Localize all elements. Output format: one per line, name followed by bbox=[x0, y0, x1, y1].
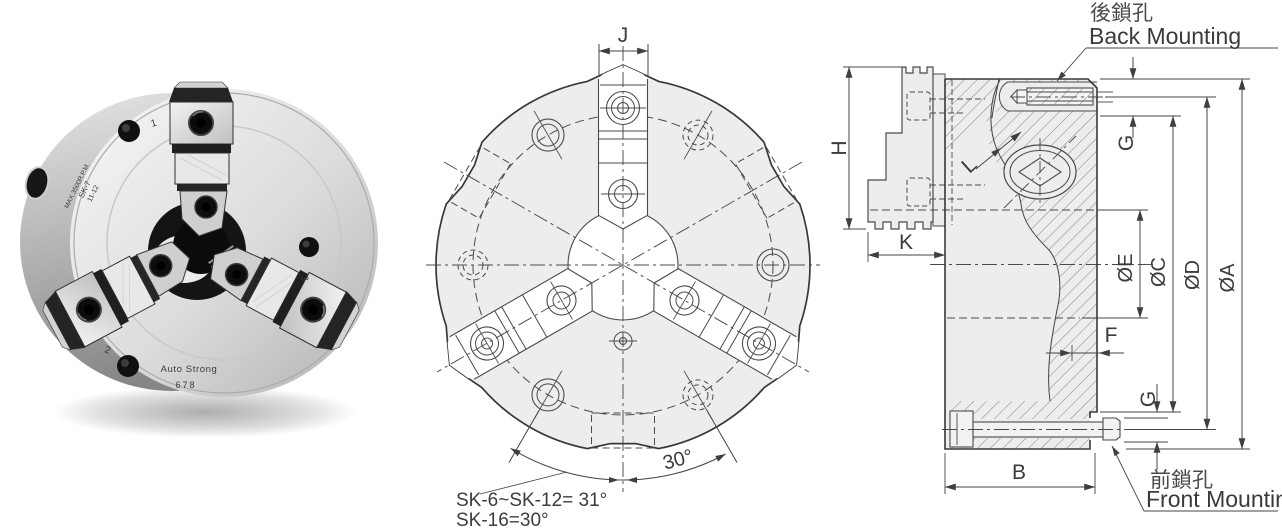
chuck-catalog-figure: MAX.3500R.P.M. SK-7 11-12 1 2 3 Auto Str… bbox=[0, 0, 1282, 530]
figure-svg: MAX.3500R.P.M. SK-7 11-12 1 2 3 Auto Str… bbox=[0, 0, 1282, 530]
back-mounting-callout: 後鎖孔 Back Mounting bbox=[1057, 2, 1278, 81]
dim-label-g-top: G bbox=[1115, 135, 1138, 151]
dim-label-j: J bbox=[618, 24, 629, 47]
angle-note-1: SK-6~SK-12= 31° bbox=[456, 490, 607, 511]
dim-label-h: H bbox=[828, 140, 851, 155]
serial-engraving: 678 bbox=[175, 380, 196, 390]
section-view-drawing: H K L G G F B ØE ØC ØD ØA 後鎖孔 Back Mount… bbox=[828, 2, 1282, 512]
front-mounting-callout: 前鎖孔 Front Mounting bbox=[1112, 446, 1282, 512]
front-view-drawing: J 30° SK-6~SK-12= 31° SK-16=30° bbox=[426, 24, 820, 530]
dim-label-k: K bbox=[899, 231, 913, 254]
dim-label-dia-c: ØC bbox=[1148, 257, 1170, 287]
angle-note-2: SK-16=30° bbox=[456, 510, 549, 530]
dim-label-dia-a: ØA bbox=[1217, 263, 1239, 293]
back-mounting-label-cjk: 後鎖孔 bbox=[1090, 2, 1153, 25]
dim-label-g-bottom: G bbox=[1137, 391, 1160, 407]
dim-label-dia-e: ØE bbox=[1115, 254, 1137, 283]
back-mounting-bolt bbox=[999, 82, 1105, 111]
dim-label-b: B bbox=[1012, 461, 1026, 484]
back-mounting-label-en: Back Mounting bbox=[1089, 23, 1241, 49]
dim-label-dia-d: ØD bbox=[1182, 260, 1204, 290]
front-mounting-label-en: Front Mounting bbox=[1146, 486, 1282, 512]
angle-label-30: 30° bbox=[661, 445, 696, 474]
brand-engraving: Auto Strong bbox=[161, 364, 218, 375]
chuck-photo: MAX.3500R.P.M. SK-7 11-12 1 2 3 Auto Str… bbox=[20, 82, 378, 438]
dim-label-f: F bbox=[1105, 324, 1118, 347]
